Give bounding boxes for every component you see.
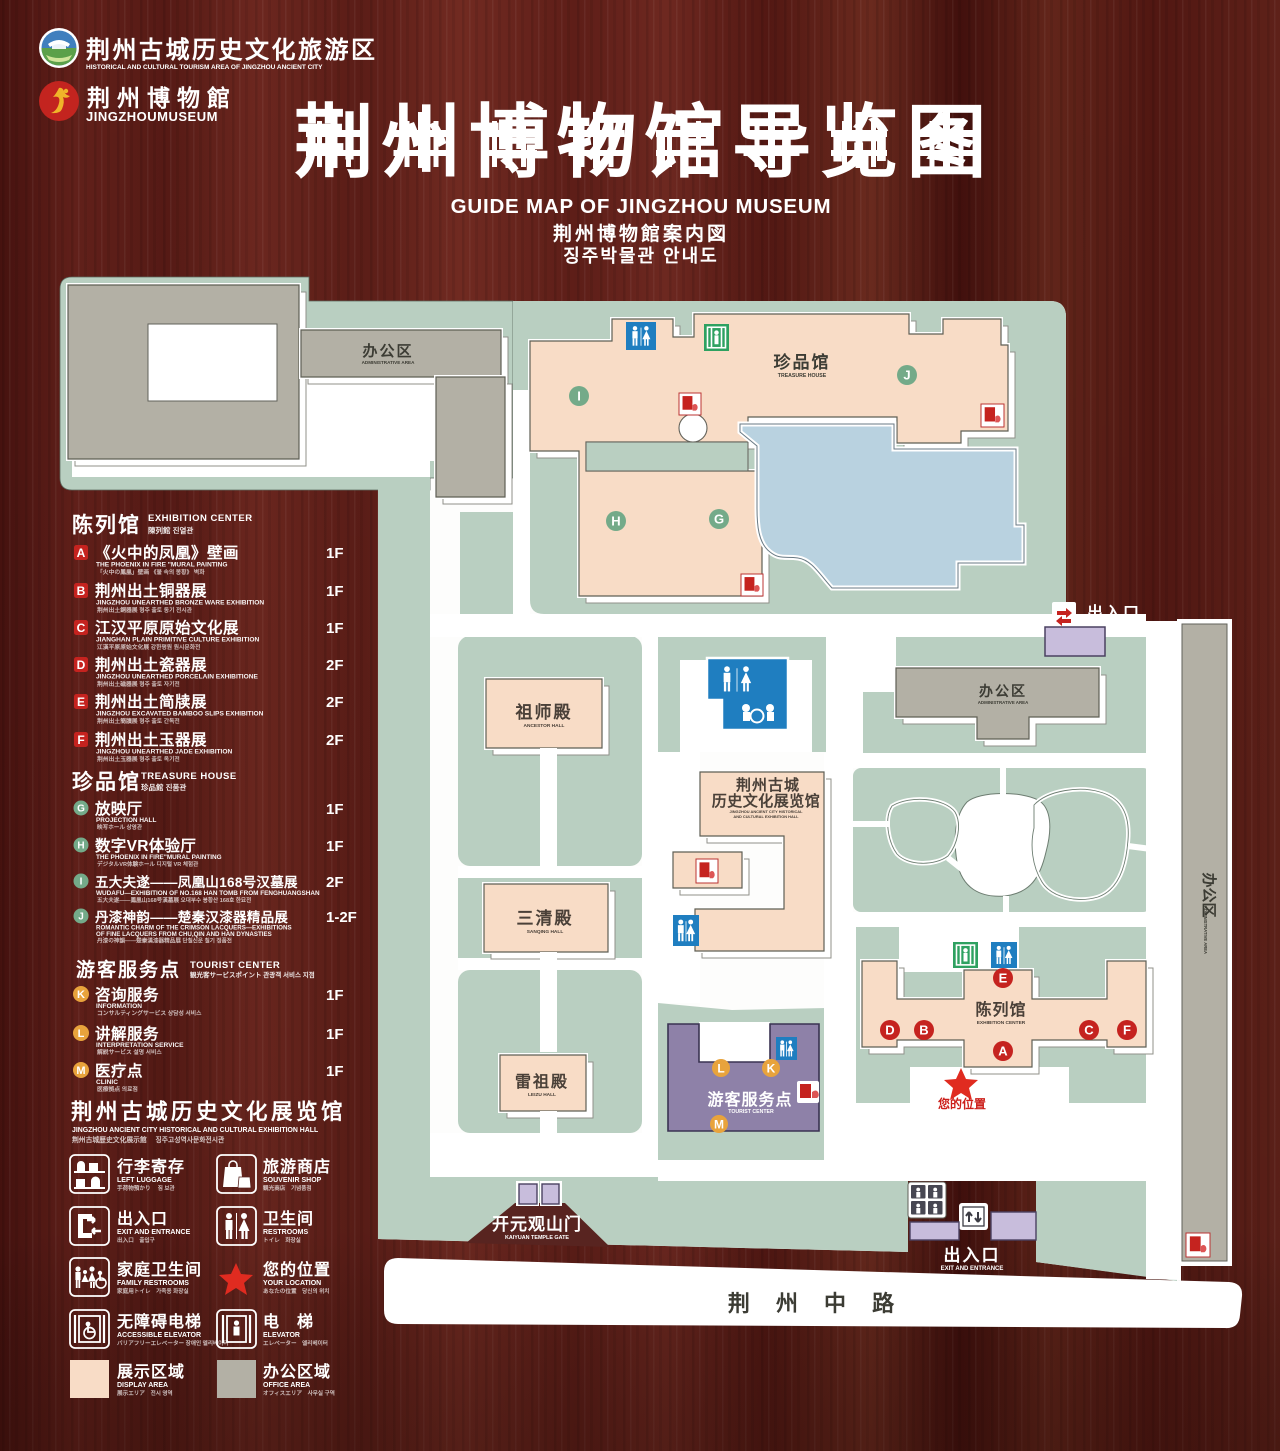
svg-text:YOUR LOCATION: YOUR LOCATION	[263, 1280, 321, 1287]
svg-text:放映厅: 放映厅	[94, 799, 143, 818]
svg-text:映写ホール 상영관: 映写ホール 상영관	[97, 823, 143, 831]
svg-text:办公区域: 办公区域	[263, 1362, 331, 1381]
svg-text:バリアフリーエレベーター 장애인 엘리베이터: バリアフリーエレベーター 장애인 엘리베이터	[117, 1339, 228, 1347]
svg-text:三清殿: 三清殿	[517, 908, 574, 928]
svg-text:电 梯: 电 梯	[263, 1312, 314, 1331]
svg-text:2F: 2F	[326, 694, 344, 711]
svg-text:荆州古城历史文化旅游区: 荆州古城历史文化旅游区	[86, 36, 378, 64]
svg-text:「火中の鳳凰」壁画 《불 속의 봉황》 벽화: 「火中の鳳凰」壁画 《불 속의 봉황》 벽화	[97, 568, 205, 576]
svg-text:ADMINISTRATIVE AREA: ADMINISTRATIVE AREA	[362, 360, 416, 365]
svg-text:H: H	[77, 841, 84, 852]
svg-text:卫生间: 卫生间	[263, 1209, 314, 1228]
svg-text:解説サービス 설명 서비스: 解説サービス 설명 서비스	[96, 1048, 162, 1056]
svg-text:トイレ 화장실: トイレ 화장실	[263, 1236, 301, 1244]
svg-text:陈列馆: 陈列馆	[975, 1000, 1026, 1019]
svg-text:旅游商店: 旅游商店	[263, 1157, 331, 1176]
svg-text:ACCESSIBLE ELEVATOR: ACCESSIBLE ELEVATOR	[117, 1332, 201, 1339]
svg-text:LEFT LUGGAGE: LEFT LUGGAGE	[117, 1177, 172, 1184]
svg-text:无障碍电梯: 无障碍电梯	[116, 1312, 202, 1331]
svg-text:ANCESTOR HALL: ANCESTOR HALL	[524, 723, 565, 729]
svg-text:荆 州 中 路: 荆 州 中 路	[728, 1291, 904, 1316]
svg-text:観光商店 기념품점: 観光商店 기념품점	[263, 1184, 312, 1192]
svg-text:2F: 2F	[326, 657, 344, 674]
svg-text:1F: 1F	[326, 801, 344, 818]
svg-text:WUDAFU—EXHIBITION OF NO.168 HA: WUDAFU—EXHIBITION OF NO.168 HAN TOMB FRO…	[96, 890, 320, 897]
svg-text:咨询服务: 咨询服务	[95, 985, 159, 1004]
svg-text:1F: 1F	[326, 583, 344, 600]
svg-text:荆州出土铜器展: 荆州出土铜器展	[95, 581, 207, 600]
svg-text:M: M	[76, 1065, 85, 1077]
svg-text:1-2F: 1-2F	[326, 909, 357, 926]
svg-text:珍品馆: 珍品馆	[774, 352, 831, 372]
svg-text:E: E	[999, 971, 1008, 986]
svg-text:オフィスエリア 사무실 구역: オフィスエリア 사무실 구역	[263, 1389, 335, 1397]
svg-text:五大夫遂——鳳凰山168号漢墓展 오대부수 봉황산 168호: 五大夫遂——鳳凰山168号漢墓展 오대부수 봉황산 168호 한묘전	[97, 896, 251, 904]
svg-text:D: D	[77, 658, 86, 672]
svg-text:JINGZHOU UNEARTHED BRONZE WARE: JINGZHOU UNEARTHED BRONZE WARE EXHIBITIO…	[96, 600, 264, 607]
svg-text:荆州古城歴史文化展示館 징주고성역사문화전시관: 荆州古城歴史文化展示館 징주고성역사문화전시관	[72, 1135, 225, 1144]
svg-text:医療拠点 의료점: 医療拠点 의료점	[97, 1085, 138, 1093]
svg-text:ELEVATOR: ELEVATOR	[263, 1332, 300, 1339]
svg-text:GUIDE MAP OF JINGZHOU MUSEUM: GUIDE MAP OF JINGZHOU MUSEUM	[451, 195, 832, 218]
svg-text:1F: 1F	[326, 545, 344, 562]
svg-text:B: B	[77, 584, 86, 598]
svg-text:J: J	[78, 912, 84, 923]
svg-text:M: M	[714, 1117, 724, 1131]
svg-text:1F: 1F	[326, 1026, 344, 1043]
svg-text:デジタルVR体験ホール 디지털 VR 체험관: デジタルVR体験ホール 디지털 VR 체험관	[97, 860, 199, 868]
svg-text:OFFICE AREA: OFFICE AREA	[263, 1382, 310, 1389]
svg-text:家庭用トイレ 가족용 화장실: 家庭用トイレ 가족용 화장실	[117, 1287, 189, 1295]
svg-text:B: B	[919, 1023, 928, 1038]
svg-text:SOUVENIR SHOP: SOUVENIR SHOP	[263, 1177, 322, 1184]
svg-text:EXHIBITION CENTER: EXHIBITION CENTER	[977, 1020, 1026, 1026]
svg-text:展示エリア 전시 영역: 展示エリア 전시 영역	[117, 1389, 173, 1397]
svg-text:JINGZHOUMUSEUM: JINGZHOUMUSEUM	[86, 109, 218, 124]
svg-text:HISTORICAL AND CULTURAL TOURIS: HISTORICAL AND CULTURAL TOURISM AREA OF …	[86, 64, 323, 71]
svg-text:讲解服务: 讲解服务	[95, 1024, 159, 1043]
svg-text:G: G	[714, 512, 724, 527]
svg-text:您的位置: 您的位置	[938, 1096, 986, 1111]
svg-text:A: A	[998, 1044, 1008, 1059]
svg-text:开元观山门: 开元观山门	[492, 1214, 582, 1234]
svg-text:TOURIST CENTER: TOURIST CENTER	[190, 960, 280, 971]
svg-text:THE PHOENIX IN FIRE"MURAL PAIN: THE PHOENIX IN FIRE"MURAL PAINTING	[96, 854, 222, 861]
svg-text:荆州出土磁器展 형주 출토 자기전: 荆州出土磁器展 형주 출토 자기전	[97, 680, 180, 688]
svg-text:1F: 1F	[326, 620, 344, 637]
svg-text:F: F	[1123, 1023, 1131, 1038]
svg-text:《火中的凤凰》壁画: 《火中的凤凰》壁画	[95, 543, 239, 562]
svg-text:游客服务点: 游客服务点	[707, 1090, 792, 1109]
svg-text:JINGZHOU UNEARTHED JADE EXHIBI: JINGZHOU UNEARTHED JADE EXHIBITION	[96, 749, 233, 756]
svg-text:珍品馆: 珍品馆	[72, 770, 141, 794]
svg-text:数字VR体验厅: 数字VR体验厅	[95, 836, 196, 855]
svg-text:珍品館 진품관: 珍品館 진품관	[141, 782, 186, 792]
svg-text:荆州古城历史文化展览馆: 荆州古城历史文化展览馆	[71, 1099, 346, 1124]
svg-text:エレベーター 엘리베이터: エレベーター 엘리베이터	[263, 1339, 328, 1347]
svg-text:荆州古城: 荆州古城	[736, 776, 800, 794]
svg-text:江漢平原原始文化展 강한평원 원시문화전: 江漢平原原始文化展 강한평원 원시문화전	[97, 643, 200, 651]
svg-text:丹漆神韵——楚秦汉漆器精品展: 丹漆神韵——楚秦汉漆器精品展	[95, 909, 288, 925]
svg-text:PROJECTION HALL: PROJECTION HALL	[96, 817, 156, 824]
svg-text:F: F	[77, 733, 84, 747]
svg-text:LEIZU HALL: LEIZU HALL	[528, 1092, 556, 1098]
svg-text:TOURIST CENTER: TOURIST CENTER	[728, 1109, 774, 1115]
svg-text:历史文化展览馆: 历史文化展览馆	[712, 792, 821, 810]
svg-text:G: G	[77, 804, 85, 815]
svg-text:祖师殿: 祖师殿	[515, 702, 573, 722]
svg-text:医疗点: 医疗点	[95, 1061, 143, 1080]
svg-text:L: L	[717, 1061, 724, 1075]
svg-text:JINGZHOU UNEARTHED PORCELAIN E: JINGZHOU UNEARTHED PORCELAIN EXHIBITIONE	[96, 674, 259, 681]
svg-text:1F: 1F	[326, 838, 344, 855]
svg-text:K: K	[767, 1061, 776, 1075]
svg-text:EXIT AND ENTRANCE: EXIT AND ENTRANCE	[941, 1266, 1004, 1272]
svg-text:出入口: 出入口	[944, 1245, 1001, 1265]
svg-text:I: I	[80, 877, 83, 888]
svg-text:陈列馆: 陈列馆	[72, 513, 141, 537]
svg-text:D: D	[885, 1023, 894, 1038]
svg-text:コンサルティングサービス 상담성 서비스: コンサルティングサービス 상담성 서비스	[97, 1009, 202, 1017]
svg-text:荆州出土玉器展 형주 출토 옥기전: 荆州出土玉器展 형주 출토 옥기전	[97, 755, 180, 763]
svg-text:観光客サービスポイント 관광객 서비스 지점: 観光客サービスポイント 관광객 서비스 지점	[190, 970, 315, 979]
svg-text:雷祖殿: 雷祖殿	[515, 1072, 569, 1091]
svg-text:办公区: 办公区	[362, 342, 413, 360]
svg-text:游客服务点: 游客服务点	[76, 958, 181, 981]
svg-text:五大夫遂——凤凰山168号汉墓展: 五大夫遂——凤凰山168号汉墓展	[95, 874, 298, 890]
svg-text:징주박물관 안내도: 징주박물관 안내도	[563, 246, 718, 266]
svg-text:DISPLAY AREA: DISPLAY AREA	[117, 1382, 168, 1389]
svg-text:H: H	[611, 514, 620, 529]
svg-text:RESTROOMS: RESTROOMS	[263, 1229, 308, 1236]
svg-text:C: C	[77, 621, 86, 635]
svg-text:SANQING HALL: SANQING HALL	[527, 929, 564, 935]
svg-text:C: C	[1084, 1023, 1094, 1038]
svg-text:1F: 1F	[326, 1063, 344, 1080]
svg-text:手荷物預かり 짐 보관: 手荷物預かり 짐 보관	[117, 1184, 176, 1192]
svg-text:TREASURE HOUSE: TREASURE HOUSE	[778, 373, 827, 379]
svg-text:1F: 1F	[326, 987, 344, 1004]
svg-text:江汉平原原始文化展: 江汉平原原始文化展	[95, 618, 239, 637]
svg-text:JINGZHOU EXCAVATED BAMBOO SLIP: JINGZHOU EXCAVATED BAMBOO SLIPS EXHIBITI…	[96, 711, 264, 718]
svg-text:荆州出土玉器展: 荆州出土玉器展	[95, 730, 207, 749]
svg-text:荆州博物館: 荆州博物館	[87, 85, 237, 111]
svg-text:E: E	[77, 695, 85, 709]
svg-text:A: A	[77, 546, 86, 560]
svg-text:荆州出土簡牘展 형주 출토 간독전: 荆州出土簡牘展 형주 출토 간독전	[97, 717, 180, 725]
svg-text:AND CULTURAL EXHIBITION HALL: AND CULTURAL EXHIBITION HALL	[733, 814, 799, 819]
svg-text:L: L	[78, 1028, 85, 1040]
svg-text:OF FINE LACQUERS FROM CHU,QIN: OF FINE LACQUERS FROM CHU,QIN AND HAN DY…	[96, 931, 272, 938]
svg-text:ADMINISTRATIVE AREA: ADMINISTRATIVE AREA	[1203, 906, 1208, 954]
svg-text:EXHIBITION CENTER: EXHIBITION CENTER	[148, 513, 253, 524]
svg-text:JIANGHAN PLAIN PRIMITIVE CULTU: JIANGHAN PLAIN PRIMITIVE CULTURE EXHIBIT…	[96, 637, 260, 644]
svg-text:2F: 2F	[326, 732, 344, 749]
svg-text:家庭卫生间: 家庭卫生间	[117, 1260, 202, 1279]
svg-text:JINGZHOU ANCIENT CITY HISTORIC: JINGZHOU ANCIENT CITY HISTORICAL AND CUL…	[72, 1127, 318, 1134]
svg-text:ADMINISTRATIVE AREA: ADMINISTRATIVE AREA	[978, 700, 1029, 705]
svg-text:行李寄存: 行李寄存	[116, 1157, 185, 1176]
svg-text:出入口: 出入口	[1087, 603, 1141, 622]
svg-text:陳列館 진열관: 陳列館 진열관	[148, 525, 193, 535]
svg-text:EXIT AND ENTRANCE: EXIT AND ENTRANCE	[117, 1229, 191, 1236]
svg-text:FAMILY RESTROOMS: FAMILY RESTROOMS	[117, 1280, 189, 1287]
svg-text:出入口 출입구: 出入口 출입구	[117, 1236, 155, 1244]
svg-text:J: J	[903, 368, 910, 383]
svg-text:荆州出土銅器展 형주 출토 동기 전시관: 荆州出土銅器展 형주 출토 동기 전시관	[97, 606, 193, 614]
svg-text:THE PHOENIX IN FIRE "MURAL PAI: THE PHOENIX IN FIRE "MURAL PAINTING	[96, 562, 227, 569]
svg-text:K: K	[77, 989, 85, 1001]
svg-text:あなたの位置 당신의 위치: あなたの位置 당신의 위치	[263, 1287, 329, 1295]
svg-text:TREASURE HOUSE: TREASURE HOUSE	[141, 771, 237, 782]
svg-text:丹漆の神韻——楚秦漢漆器精品展 단칠신운 칠기 정품전: 丹漆の神韻——楚秦漢漆器精品展 단칠신운 칠기 정품전	[97, 937, 232, 945]
svg-text:KAIYUAN TEMPLE GATE: KAIYUAN TEMPLE GATE	[505, 1235, 569, 1241]
svg-text:办公区: 办公区	[1200, 872, 1218, 917]
svg-text:荆州出土简牍展: 荆州出土简牍展	[95, 692, 207, 711]
svg-text:荆州博物館案内図: 荆州博物館案内図	[553, 222, 729, 245]
svg-text:INTERPRETATION SERVICE: INTERPRETATION SERVICE	[96, 1042, 184, 1049]
svg-text:I: I	[577, 389, 581, 404]
svg-text:INFORMATION: INFORMATION	[96, 1003, 142, 1010]
svg-text:CLINIC: CLINIC	[96, 1079, 118, 1086]
svg-text:展示区域: 展示区域	[117, 1362, 185, 1381]
svg-text:2F: 2F	[326, 874, 344, 891]
svg-text:您的位置: 您的位置	[263, 1260, 331, 1279]
svg-text:办公区: 办公区	[979, 683, 1027, 699]
svg-text:荆州出土瓷器展: 荆州出土瓷器展	[95, 655, 207, 674]
svg-text:出入口: 出入口	[117, 1209, 168, 1228]
